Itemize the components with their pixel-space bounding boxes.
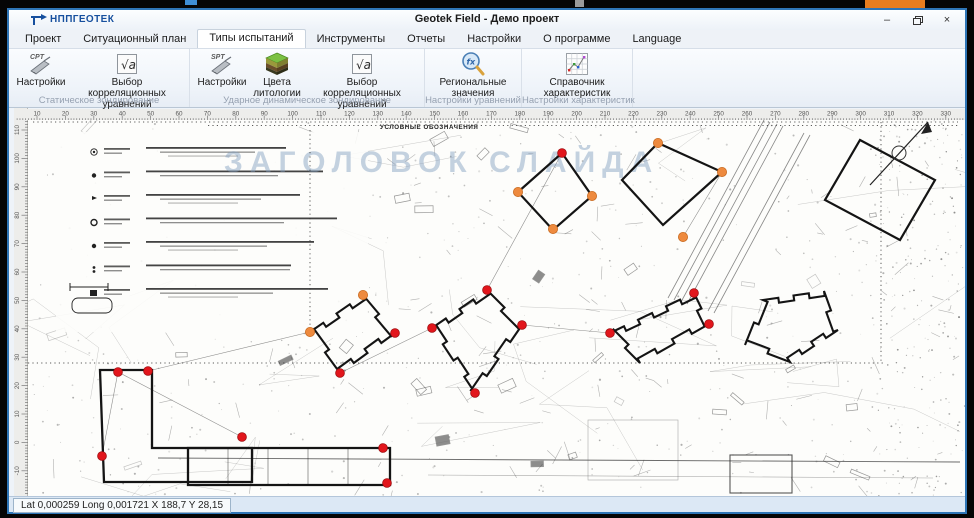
svg-text:fx: fx [467, 58, 476, 67]
svg-text:50: 50 [147, 111, 155, 118]
svg-text:140: 140 [401, 111, 412, 118]
svg-text:210: 210 [600, 111, 611, 118]
svg-text:0: 0 [14, 440, 21, 444]
ribbon-group-dynamic-sounding: SPTНастройкиЦвета литологии√aВыбор корре… [190, 49, 425, 107]
close-icon: × [944, 14, 950, 26]
geotek-logo-icon [31, 14, 47, 25]
svg-text:330: 330 [941, 111, 952, 118]
window-controls: – × [879, 12, 955, 28]
spt-settings-label: Настройки [197, 77, 246, 88]
test-point-orange[interactable] [305, 327, 314, 336]
coordinates-readout: Lat 0,000259 Long 0,001721 X 188,7 Y 28,… [13, 498, 231, 513]
svg-text:70: 70 [204, 111, 212, 118]
test-point-orange[interactable] [513, 187, 522, 196]
test-point-red[interactable] [98, 452, 107, 461]
building-outline [610, 293, 709, 363]
svg-text:290: 290 [827, 111, 838, 118]
restore-button[interactable] [909, 13, 925, 28]
svg-text:60: 60 [175, 111, 183, 118]
svg-text:SPT: SPT [211, 54, 225, 61]
svg-text:120: 120 [344, 111, 355, 118]
ribbon-group-label-equation-settings: Настройки уравнений [425, 95, 521, 106]
ribbon-group-label-static-sounding: Статическое зондирование [9, 95, 189, 106]
slide-background: Geotek Field - Демо проект НППГЕОТЕК – ×… [0, 0, 974, 518]
svg-text:80: 80 [232, 111, 240, 118]
test-point-red[interactable] [428, 324, 437, 333]
test-point-red[interactable] [114, 368, 123, 377]
svg-text:300: 300 [855, 111, 866, 118]
cpt-settings-button[interactable]: CPTНастройки [13, 50, 69, 88]
svg-text:√a: √a [356, 58, 371, 72]
test-point-orange[interactable] [717, 167, 726, 176]
svg-text:100: 100 [14, 153, 21, 164]
svg-text:60: 60 [14, 268, 21, 276]
svg-text:80: 80 [14, 211, 21, 219]
window-title: Geotek Field - Демо проект [9, 13, 965, 25]
test-point-red[interactable] [336, 369, 345, 378]
site-plan-map[interactable]: УСЛОВНЫЕ ОБОЗНАЧЕНИЯЗАГОЛОВОК СЛАЙДА [28, 120, 965, 496]
tab-project[interactable]: Проект [14, 30, 72, 48]
test-point-orange[interactable] [548, 224, 557, 233]
building-outline [188, 448, 390, 485]
test-point-red[interactable] [471, 389, 480, 398]
building-outline [100, 370, 252, 482]
building-outline [825, 140, 935, 240]
characteristics-chart-icon [562, 51, 592, 77]
svg-text:10: 10 [33, 111, 41, 118]
slide-accent-gray [575, 0, 584, 7]
test-point-red[interactable] [518, 321, 527, 330]
status-bar: Lat 0,000259 Long 0,001721 X 188,7 Y 28,… [9, 496, 965, 512]
test-point-orange[interactable] [587, 191, 596, 200]
svg-text:170: 170 [486, 111, 497, 118]
svg-text:200: 200 [571, 111, 582, 118]
ribbon-group-label-characteristic-settings: Настройки характеристик [522, 95, 632, 106]
fx-magnifier-icon: fx [458, 51, 488, 77]
svg-text:160: 160 [458, 111, 469, 118]
vertical-ruler: 1101009080706050403020100-10 [14, 120, 28, 496]
tab-reports[interactable]: Отчеты [396, 30, 456, 48]
logo-text: НППГЕОТЕК [50, 14, 114, 25]
svg-text:270: 270 [770, 111, 781, 118]
svg-text:90: 90 [261, 111, 269, 118]
regional-values-button[interactable]: fxРегиональные значения [429, 50, 517, 99]
ribbon-group-static-sounding: CPTНастройки√aВыбор корреляционных уравн… [9, 49, 190, 107]
tab-test-types[interactable]: Типы испытаний [197, 29, 305, 48]
svg-text:20: 20 [62, 111, 70, 118]
svg-text:110: 110 [316, 111, 327, 118]
svg-text:100: 100 [287, 111, 298, 118]
svg-text:√a: √a [121, 58, 136, 72]
cpt-probe-icon: CPT [26, 51, 56, 77]
svg-text:320: 320 [912, 111, 923, 118]
lithology-cube-icon [262, 51, 292, 77]
spt-probe-icon: SPT [207, 51, 237, 77]
sqrt-a-icon: √a [112, 51, 142, 77]
tab-settings[interactable]: Настройки [456, 30, 532, 48]
svg-text:310: 310 [884, 111, 895, 118]
svg-text:90: 90 [14, 183, 21, 191]
close-button[interactable]: × [939, 13, 955, 28]
svg-text:180: 180 [515, 111, 526, 118]
svg-text:280: 280 [799, 111, 810, 118]
tab-situation-plan[interactable]: Ситуационный план [72, 30, 197, 48]
test-point-red[interactable] [705, 320, 714, 329]
horizontal-ruler: 1020304050607080901001101201301401501601… [14, 108, 965, 120]
svg-text:-10: -10 [14, 466, 21, 476]
svg-text:110: 110 [14, 124, 21, 135]
svg-text:30: 30 [90, 111, 98, 118]
test-point-red[interactable] [144, 367, 153, 376]
lithology-colors-button[interactable]: Цвета литологии [250, 50, 304, 99]
cpt-settings-label: Настройки [16, 77, 65, 88]
test-point-red[interactable] [391, 329, 400, 338]
svg-text:150: 150 [429, 111, 440, 118]
test-point-red[interactable] [558, 149, 567, 158]
svg-text:20: 20 [14, 382, 21, 390]
svg-text:240: 240 [685, 111, 696, 118]
tab-about[interactable]: О программе [532, 30, 621, 48]
svg-text:CPT: CPT [30, 54, 45, 61]
minimize-button[interactable]: – [879, 13, 895, 28]
tab-language[interactable]: Language [621, 30, 692, 48]
characteristics-reference-button[interactable]: Справочник характеристик [526, 50, 628, 99]
test-point-red[interactable] [606, 329, 615, 338]
slide-accent-blue [185, 0, 197, 5]
svg-text:250: 250 [713, 111, 724, 118]
ribbon-tab-bar: ПроектСитуационный планТипы испытанийИнс… [9, 30, 965, 48]
svg-text:50: 50 [14, 296, 21, 304]
tab-tools[interactable]: Инструменты [306, 30, 397, 48]
svg-text:220: 220 [628, 111, 639, 118]
test-point-red[interactable] [383, 479, 392, 488]
sqrt-a-icon: √a [347, 51, 377, 77]
svg-text:40: 40 [14, 325, 21, 333]
svg-text:190: 190 [543, 111, 554, 118]
building-outline [745, 291, 838, 362]
svg-text:10: 10 [14, 410, 21, 418]
title-bar[interactable]: Geotek Field - Демо проект НППГЕОТЕК – × [9, 10, 965, 30]
slide-watermark: ЗАГОЛОВОК СЛАЙДА [224, 145, 659, 179]
svg-text:30: 30 [14, 353, 21, 361]
test-point-orange[interactable] [678, 232, 687, 241]
north-arrow-icon [870, 122, 928, 185]
ribbon-group-label-dynamic-sounding: Ударное динамическое зондирование [190, 95, 424, 106]
ribbon: CPTНастройки√aВыбор корреляционных уравн… [9, 48, 965, 108]
spt-settings-button[interactable]: SPTНастройки [194, 50, 250, 88]
test-point-red[interactable] [379, 444, 388, 453]
svg-text:40: 40 [119, 111, 127, 118]
svg-text:260: 260 [742, 111, 753, 118]
svg-text:230: 230 [657, 111, 668, 118]
building-outline [432, 290, 522, 393]
ribbon-group-characteristic-settings: Справочник характеристикНастройки характ… [522, 49, 633, 107]
ribbon-group-equation-settings: fxРегиональные значенияНастройки уравнен… [425, 49, 522, 107]
minimize-icon: – [884, 14, 890, 26]
svg-text:70: 70 [14, 240, 21, 248]
test-point-red[interactable] [238, 433, 247, 442]
app-logo: НППГЕОТЕК [31, 14, 114, 25]
test-point-red[interactable] [690, 289, 699, 298]
slide-accent-orange [865, 0, 925, 8]
test-point-orange[interactable] [653, 138, 662, 147]
test-point-red[interactable] [483, 286, 492, 295]
test-point-orange[interactable] [358, 290, 367, 299]
svg-text:130: 130 [373, 111, 384, 118]
restore-icon [913, 16, 922, 24]
